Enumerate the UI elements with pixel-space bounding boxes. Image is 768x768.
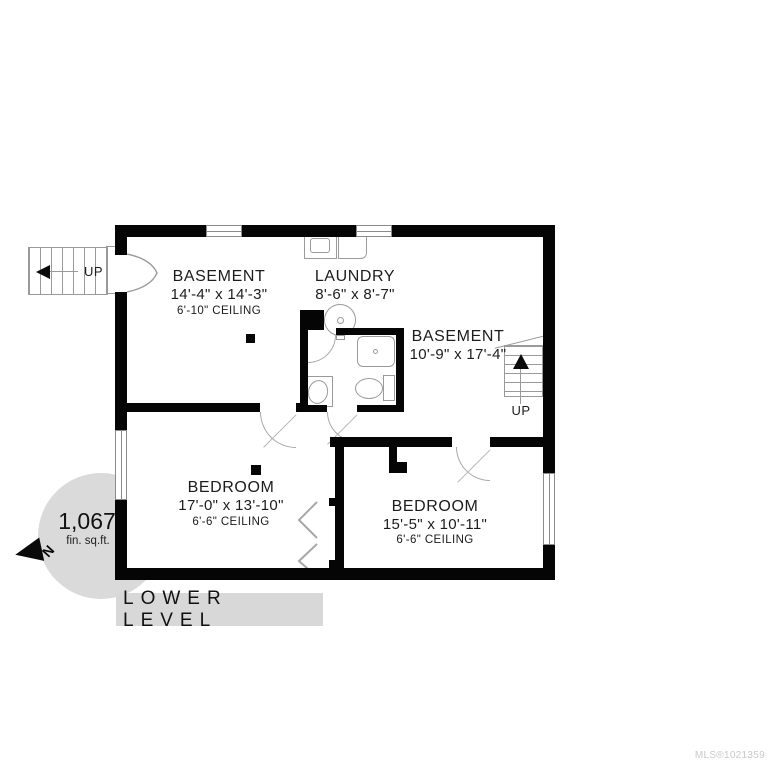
wall-stub-laundry [300, 310, 324, 330]
outer-wall-left-middle [115, 292, 127, 432]
shower-drain-icon [373, 349, 378, 354]
floor-plan-canvas: 1,067 fin. sq.ft. N UP [0, 0, 768, 768]
window-top-left [206, 225, 242, 237]
closet-nook-stub [389, 462, 407, 473]
bedroom1-ceiling: 6'-6" CEILING [192, 516, 269, 528]
finished-area-unit: fin. sq.ft. [66, 535, 109, 547]
north-arrow-icon [13, 537, 44, 566]
mls-watermark: MLS®1021359 [695, 750, 765, 761]
outer-wall-right-upper [543, 225, 555, 475]
closet-door-stub-top [329, 498, 335, 506]
wall-basement-bedroom1 [127, 403, 260, 412]
bath-wall-top [336, 328, 404, 335]
window-top-right [356, 225, 392, 237]
bath-wall-right [396, 335, 404, 412]
wall-basement2-bedroom2-b [397, 437, 452, 447]
stairs-exterior-arrow-shaft [48, 271, 78, 272]
bedroom2-dims: 15'-5" x 10'-11" [383, 516, 487, 533]
bedroom2-ceiling: 6'-6" CEILING [396, 534, 473, 546]
double-door-icon [127, 253, 159, 293]
wall-basement2-bedroom2-c [490, 437, 543, 447]
laundry-dims: 8'-6" x 8'-7" [315, 286, 394, 303]
bedroom2-name: BEDROOM [392, 498, 479, 516]
basement2-name: BASEMENT [412, 328, 505, 346]
toilet-tank-icon [383, 375, 395, 401]
bath-wall-bottom-right [357, 405, 404, 412]
bedroom1-dims: 17'-0" x 13'-10" [178, 497, 283, 514]
wall-bedroom-divider [335, 447, 344, 568]
window-left-bedroom1 [115, 430, 127, 500]
stairs-interior [504, 345, 543, 397]
outer-wall-top [115, 225, 555, 237]
stairs-interior-arrow-icon [513, 354, 529, 369]
outer-wall-bottom [115, 568, 555, 580]
stairs-interior-up-label: UP [511, 403, 530, 418]
outer-wall-left-upper [115, 225, 127, 255]
basement1-ceiling: 6'-10" CEILING [177, 305, 261, 317]
stairs-exterior-arrow-icon [36, 265, 50, 279]
toilet-bowl-icon [355, 378, 383, 399]
water-heater-valve-icon [337, 317, 344, 324]
bath-wall-left [300, 328, 308, 412]
stairs-exterior-up-label: UP [84, 264, 103, 279]
basement2-dims: 10'-9" x 17'-4" [410, 346, 507, 363]
bath-wall-bottom-left [300, 405, 327, 412]
bedroom1-name: BEDROOM [188, 479, 275, 497]
basement1-name: BASEMENT [173, 268, 266, 286]
closet-door-stub-bottom [329, 560, 335, 568]
finished-area-value: 1,067 [58, 508, 116, 535]
basement1-dims: 14'-4" x 14'-3" [171, 286, 268, 303]
level-title: LOWER LEVEL [116, 588, 323, 632]
post-basement [246, 334, 255, 343]
window-right-bedroom2 [543, 473, 555, 545]
wall-basement2-bedroom2-a [330, 437, 389, 447]
level-title-box: LOWER LEVEL [116, 593, 323, 626]
laundry-name: LAUNDRY [315, 268, 395, 286]
washer-drum-icon [310, 238, 330, 253]
water-heater-tab-icon [336, 335, 345, 340]
post-bedroom1 [251, 465, 261, 475]
